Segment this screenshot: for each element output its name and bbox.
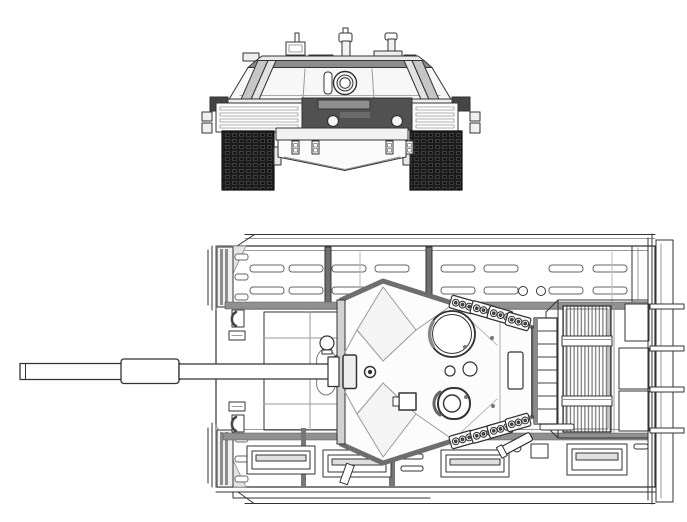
stowage-panel [567, 444, 627, 475]
headlight-right [392, 116, 403, 127]
blueprint-canvas [0, 0, 687, 522]
thermal-sleeve [121, 359, 179, 384]
stowage-panel [441, 450, 509, 477]
top-view [20, 234, 684, 504]
ventilator-dome [320, 336, 334, 350]
lifting-eye [537, 287, 546, 296]
engine-deck-grille [563, 306, 611, 432]
rear-stowage-bin [619, 391, 649, 431]
periscope [445, 366, 455, 376]
skirt-divider [325, 247, 331, 303]
front-view [202, 28, 480, 190]
turret-bustle-rack [534, 318, 557, 424]
track-right [410, 131, 462, 190]
rear-stowage-bin [619, 348, 649, 389]
track-left [222, 131, 274, 190]
headlight-left [328, 116, 339, 127]
periscope [463, 362, 477, 376]
rear-stowage-bin [625, 304, 649, 341]
gun-mantlet [343, 355, 357, 389]
lifting-eye [519, 287, 528, 296]
tank-blueprint-svg [0, 0, 687, 522]
turret-front [228, 56, 452, 104]
glacis-plate [276, 128, 413, 171]
stowage-panel [247, 446, 315, 474]
commander-hatch [429, 311, 475, 357]
loader-hatch [438, 388, 470, 419]
